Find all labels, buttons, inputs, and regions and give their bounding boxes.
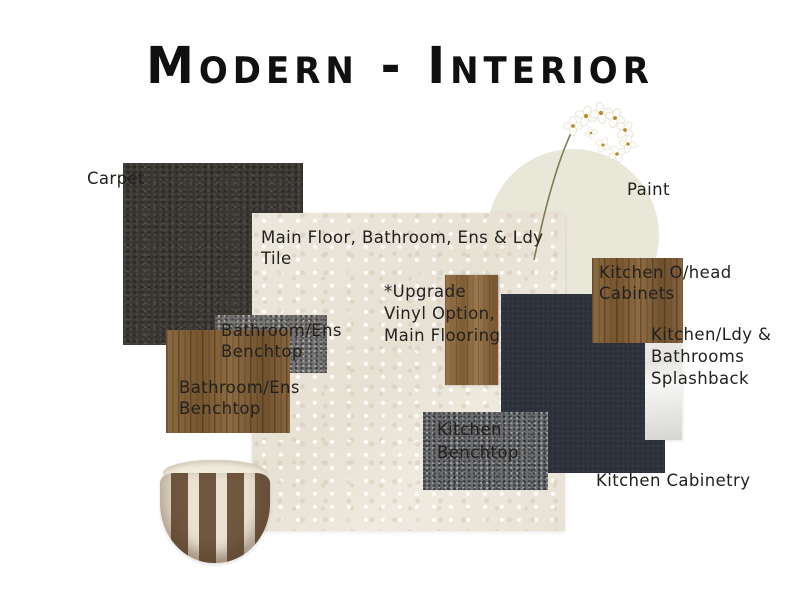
kitchen-ohead-cabinets-label: Kitchen O/head Cabinets — [599, 262, 732, 304]
splashback-label: Kitchen/Ldy & Bathrooms Splashback — [651, 324, 771, 390]
tile-label: Main Floor, Bathroom, Ens & Ldy Tile — [261, 227, 543, 269]
page-title: Modern - Interior — [0, 36, 800, 95]
bathroom-benchtop-stone-label: Bathroom/Ens Benchtop — [221, 320, 342, 362]
striped-pot — [160, 460, 270, 563]
carpet-label: Carpet — [87, 168, 145, 189]
vinyl-upgrade-label: *Upgrade Vinyl Option, Main Flooring — [384, 281, 500, 347]
kitchen-cabinetry-label: Kitchen Cabinetry — [596, 470, 750, 491]
bathroom-benchtop-wood-label: Bathroom/Ens Benchtop — [179, 377, 300, 419]
kitchen-benchtop-label: Kitchen Benchtop — [437, 418, 519, 464]
moodboard: Modern - Interior — [0, 0, 800, 600]
pot-body — [160, 473, 270, 563]
paint-label: Paint — [627, 179, 670, 200]
